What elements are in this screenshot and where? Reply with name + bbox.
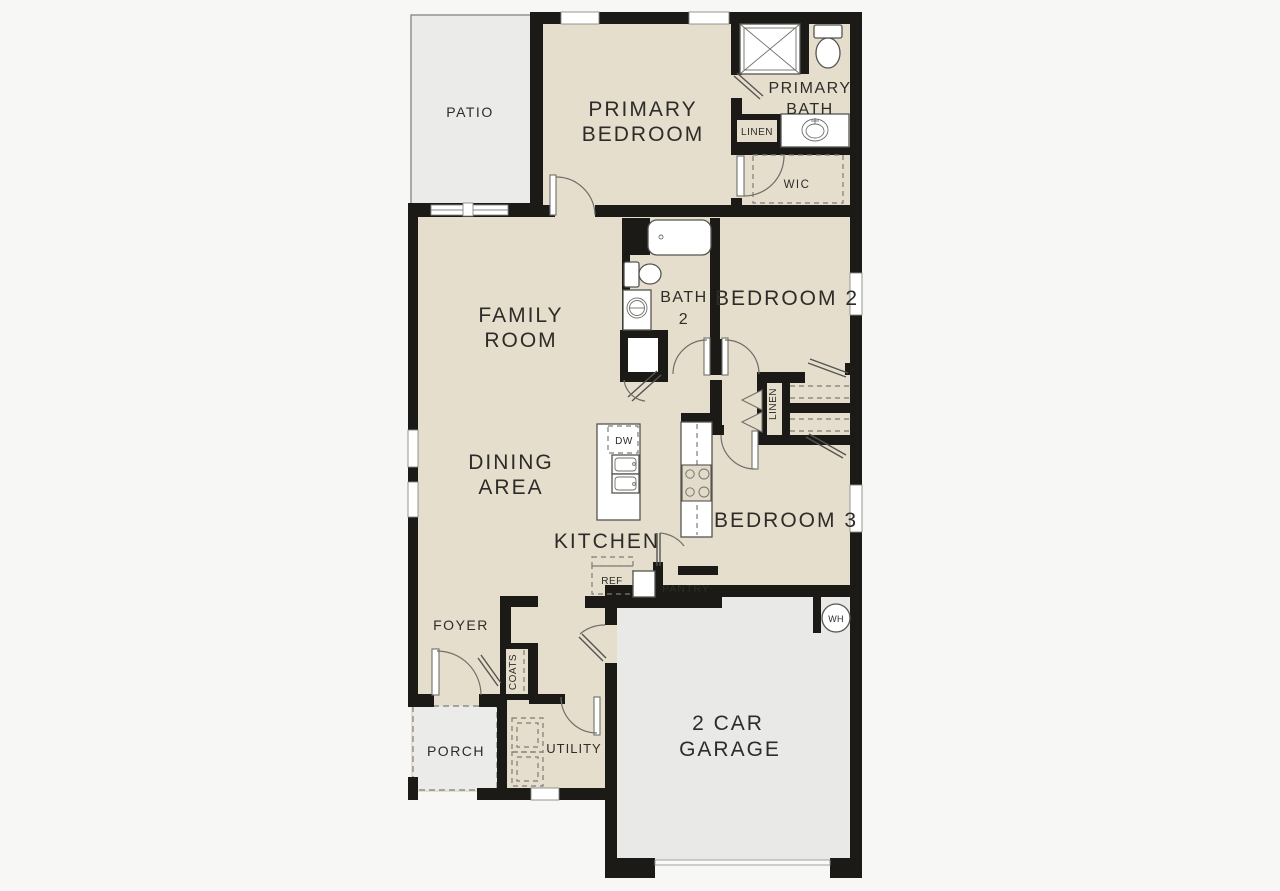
family-room-label: FAMILY [478,304,563,327]
kitchen-counter [681,422,712,537]
bath2-label: 2 [679,311,689,328]
garage-door [655,860,830,865]
bedroom3-label: BEDROOM 3 [714,509,858,532]
utility-label: UTILITY [546,741,601,756]
vanity-sink [781,114,849,147]
window [689,12,729,24]
dining-label: DINING [468,451,554,474]
patio-label: PATIO [446,104,493,120]
shower [740,24,800,74]
window [561,12,599,24]
wic-label: WIC [784,179,811,191]
kitchen-label: KITCHEN [554,530,660,553]
sliding-door [431,203,508,216]
water-heater-label: WH [828,614,844,624]
window [408,482,418,517]
coats-label: COATS [508,654,519,690]
window [408,430,418,467]
linen-label: LINEN [741,127,773,138]
vanity-sink [623,290,651,330]
primary-bath-label: BATH [786,101,833,118]
garage-label: 2 CAR [692,712,764,735]
family-room-label: ROOM [484,329,557,352]
primary-bath-label: PRIMARY [768,80,851,97]
floor-plan-page: PATIO PRIMARY BEDROOM PRIMARY BATH LINEN… [0,0,1280,891]
dishwasher-label: DW [615,436,633,447]
primary-bedroom-label: BEDROOM [582,123,705,146]
dining-label: AREA [478,476,543,499]
bath2-label: BATH [660,289,707,306]
primary-bedroom-label: PRIMARY [588,98,697,121]
toilet [814,25,842,68]
bathtub [648,220,711,255]
refrigerator-label: REF [601,576,623,587]
pantry-label: PANTRY [662,583,710,595]
floor-plan-drawing: PATIO PRIMARY BEDROOM PRIMARY BATH LINEN… [0,0,1280,891]
garage-label: GARAGE [679,738,781,761]
porch-label: PORCH [427,743,485,759]
window [531,788,559,800]
cabinet [633,571,655,597]
foyer-label: FOYER [433,617,489,633]
hall-linen-label: LINEN [768,388,779,420]
range [682,465,711,501]
bedroom2-label: BEDROOM 2 [715,287,859,310]
